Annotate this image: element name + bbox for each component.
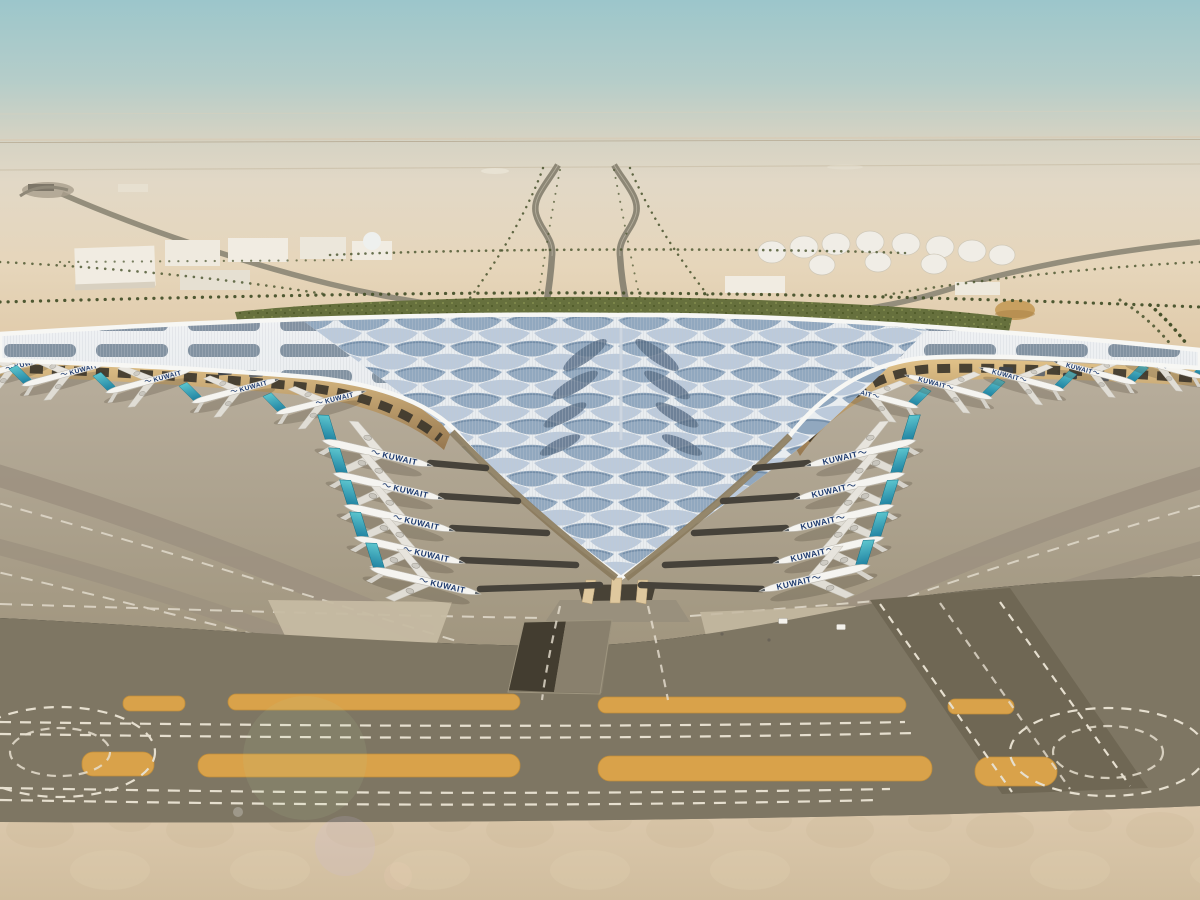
jet-bridge <box>641 585 762 589</box>
apron-bollard <box>767 638 770 641</box>
airport-aerial-rendering: KUWAIT KUWAIT <box>0 0 1200 900</box>
service-vehicle <box>779 618 788 624</box>
service-vehicle <box>837 624 846 630</box>
apron-bollard <box>720 632 723 635</box>
scene-canvas: KUWAIT KUWAIT <box>0 0 1200 900</box>
jet-bridge <box>480 585 600 589</box>
